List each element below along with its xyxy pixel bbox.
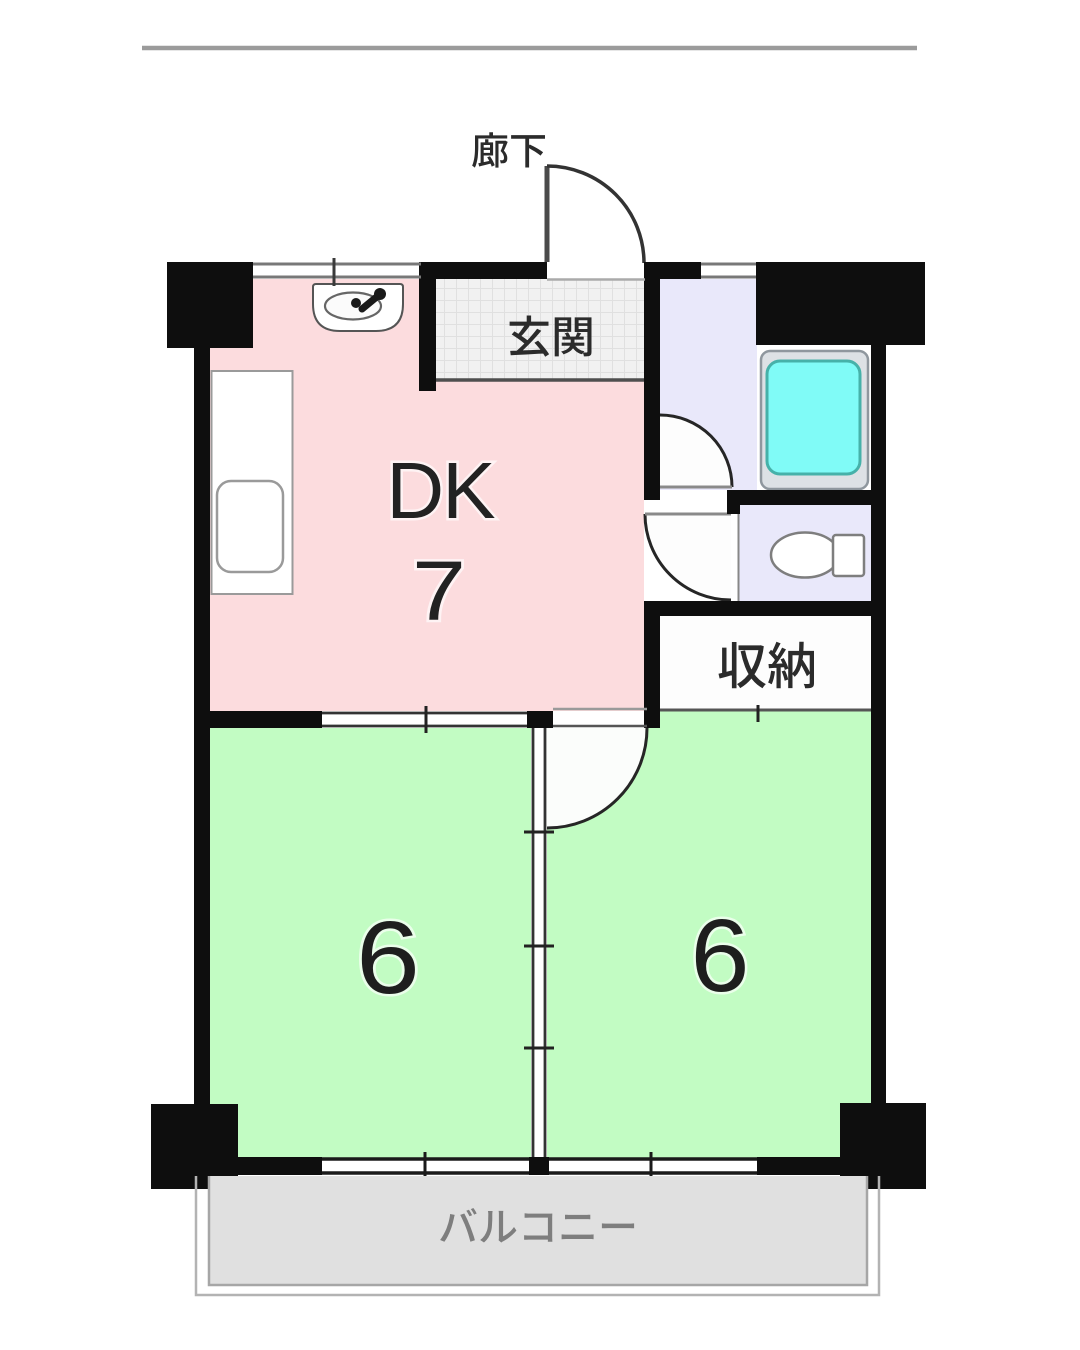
svg-text:7: 7 <box>412 544 466 638</box>
svg-text:6: 6 <box>356 900 420 1015</box>
svg-text:6: 6 <box>691 898 750 1013</box>
svg-text:DK: DK <box>386 446 495 535</box>
